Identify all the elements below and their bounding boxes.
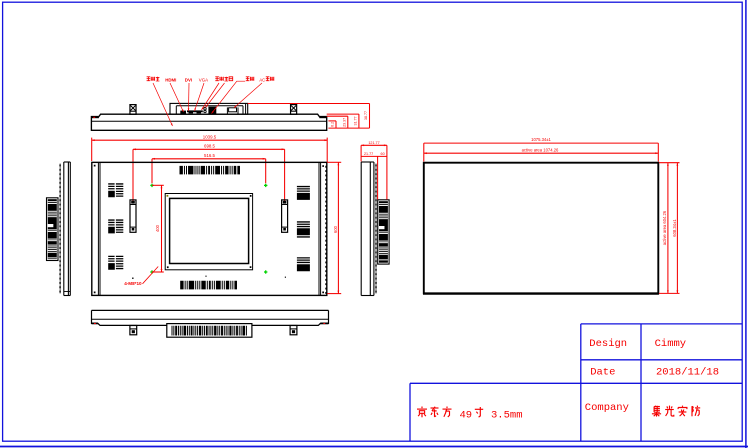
svg-text:Design: Design [589, 338, 627, 350]
svg-text:1075.34±1: 1075.34±1 [531, 137, 551, 142]
svg-text:VGA: VGA [199, 77, 208, 82]
svg-text:38.77: 38.77 [364, 111, 368, 120]
svg-text:2018/11/18: 2018/11/18 [656, 367, 719, 379]
svg-text:AC: AC [259, 77, 265, 82]
svg-text:21.77: 21.77 [364, 152, 373, 156]
svg-text:121.77: 121.77 [368, 141, 379, 145]
svg-text:6.2: 6.2 [330, 122, 334, 127]
svg-text:3.5mm: 3.5mm [491, 409, 523, 421]
svg-text:Date: Date [590, 367, 615, 379]
svg-text:516.5: 516.5 [204, 153, 216, 158]
svg-text:Company: Company [585, 402, 629, 414]
svg-text:600: 600 [333, 225, 338, 233]
svg-text:DVI: DVI [185, 77, 192, 82]
svg-text:23.37: 23.37 [342, 118, 346, 127]
svg-text:608.34±1: 608.34±1 [672, 219, 677, 237]
svg-text:active area 1074.26: active area 1074.26 [522, 147, 559, 152]
svg-text:400: 400 [155, 224, 160, 232]
svg-text:4-M8*10: 4-M8*10 [124, 281, 142, 286]
svg-text:Cimmy: Cimmy [655, 338, 687, 350]
svg-text:60: 60 [381, 152, 385, 156]
svg-text:1039.5: 1039.5 [203, 134, 217, 139]
svg-text:31.77: 31.77 [354, 117, 358, 126]
svg-text:698.5: 698.5 [204, 144, 216, 149]
svg-text:HDMI: HDMI [165, 77, 176, 82]
svg-text:49: 49 [460, 409, 473, 421]
svg-text:active area 604.26: active area 604.26 [662, 210, 667, 245]
